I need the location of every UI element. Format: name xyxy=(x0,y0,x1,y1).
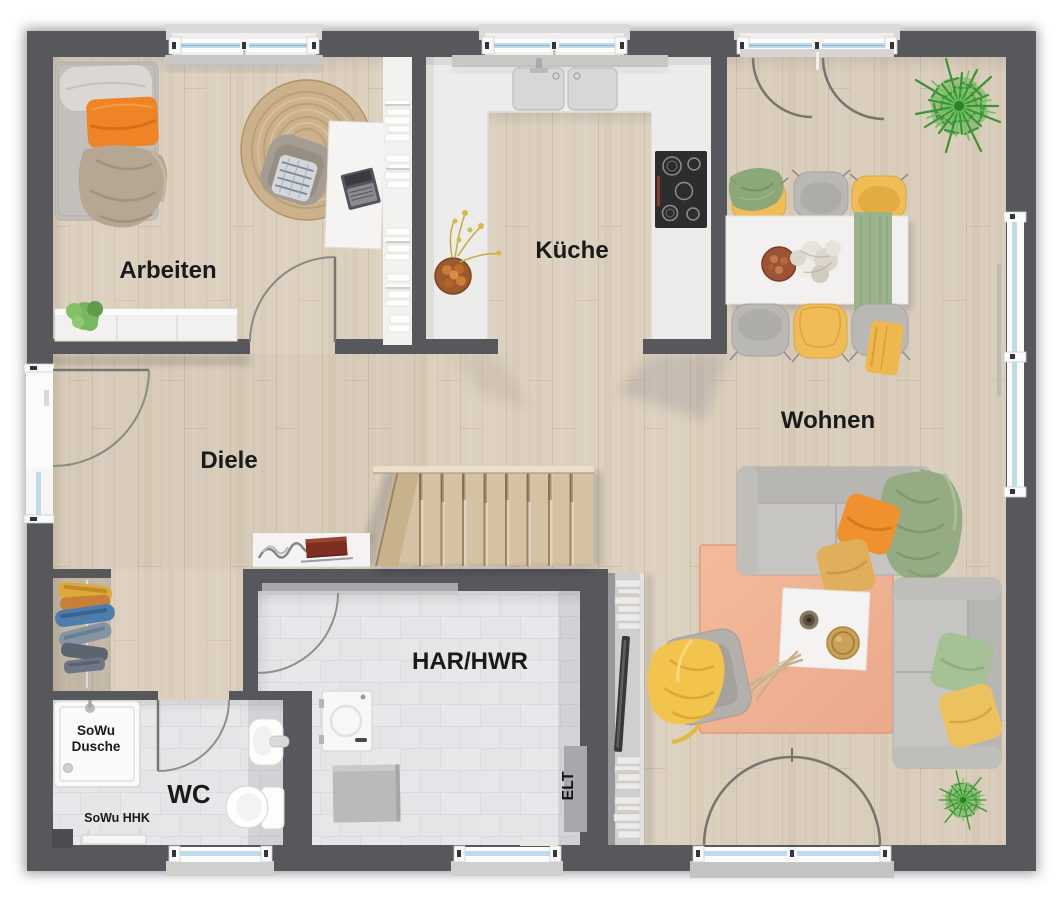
svg-text:Dusche: Dusche xyxy=(72,739,121,754)
svg-text:HAR/HWR: HAR/HWR xyxy=(412,648,528,675)
svg-text:Diele: Diele xyxy=(200,447,257,474)
svg-text:SoWu: SoWu xyxy=(77,723,115,738)
svg-text:Wohnen: Wohnen xyxy=(781,407,875,434)
svg-text:Küche: Küche xyxy=(535,237,608,264)
svg-text:Arbeiten: Arbeiten xyxy=(119,257,216,284)
svg-text:SoWu HHK: SoWu HHK xyxy=(84,811,150,825)
svg-text:ELT: ELT xyxy=(560,771,577,800)
svg-text:WC: WC xyxy=(167,779,211,809)
